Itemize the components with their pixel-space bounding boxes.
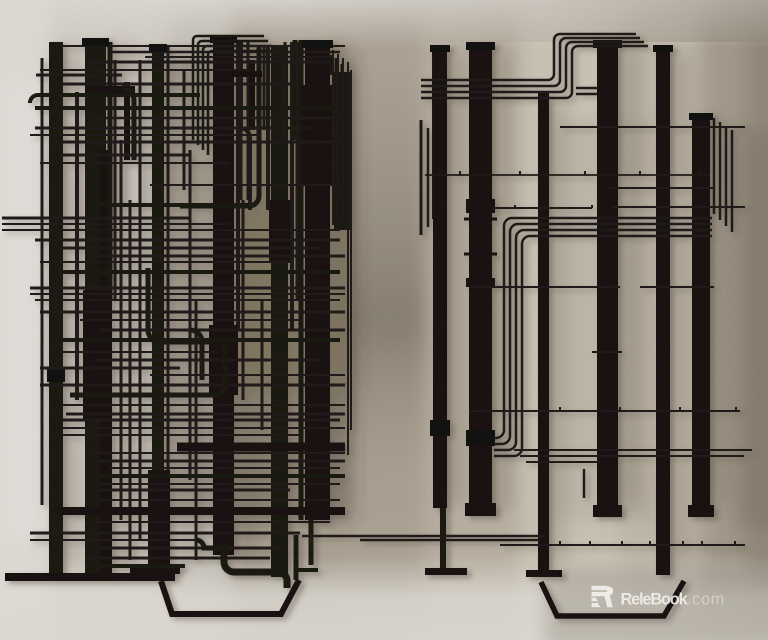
svg-text:ReleBook: ReleBook: [621, 590, 689, 608]
svg-text:.com: .com: [687, 590, 725, 608]
